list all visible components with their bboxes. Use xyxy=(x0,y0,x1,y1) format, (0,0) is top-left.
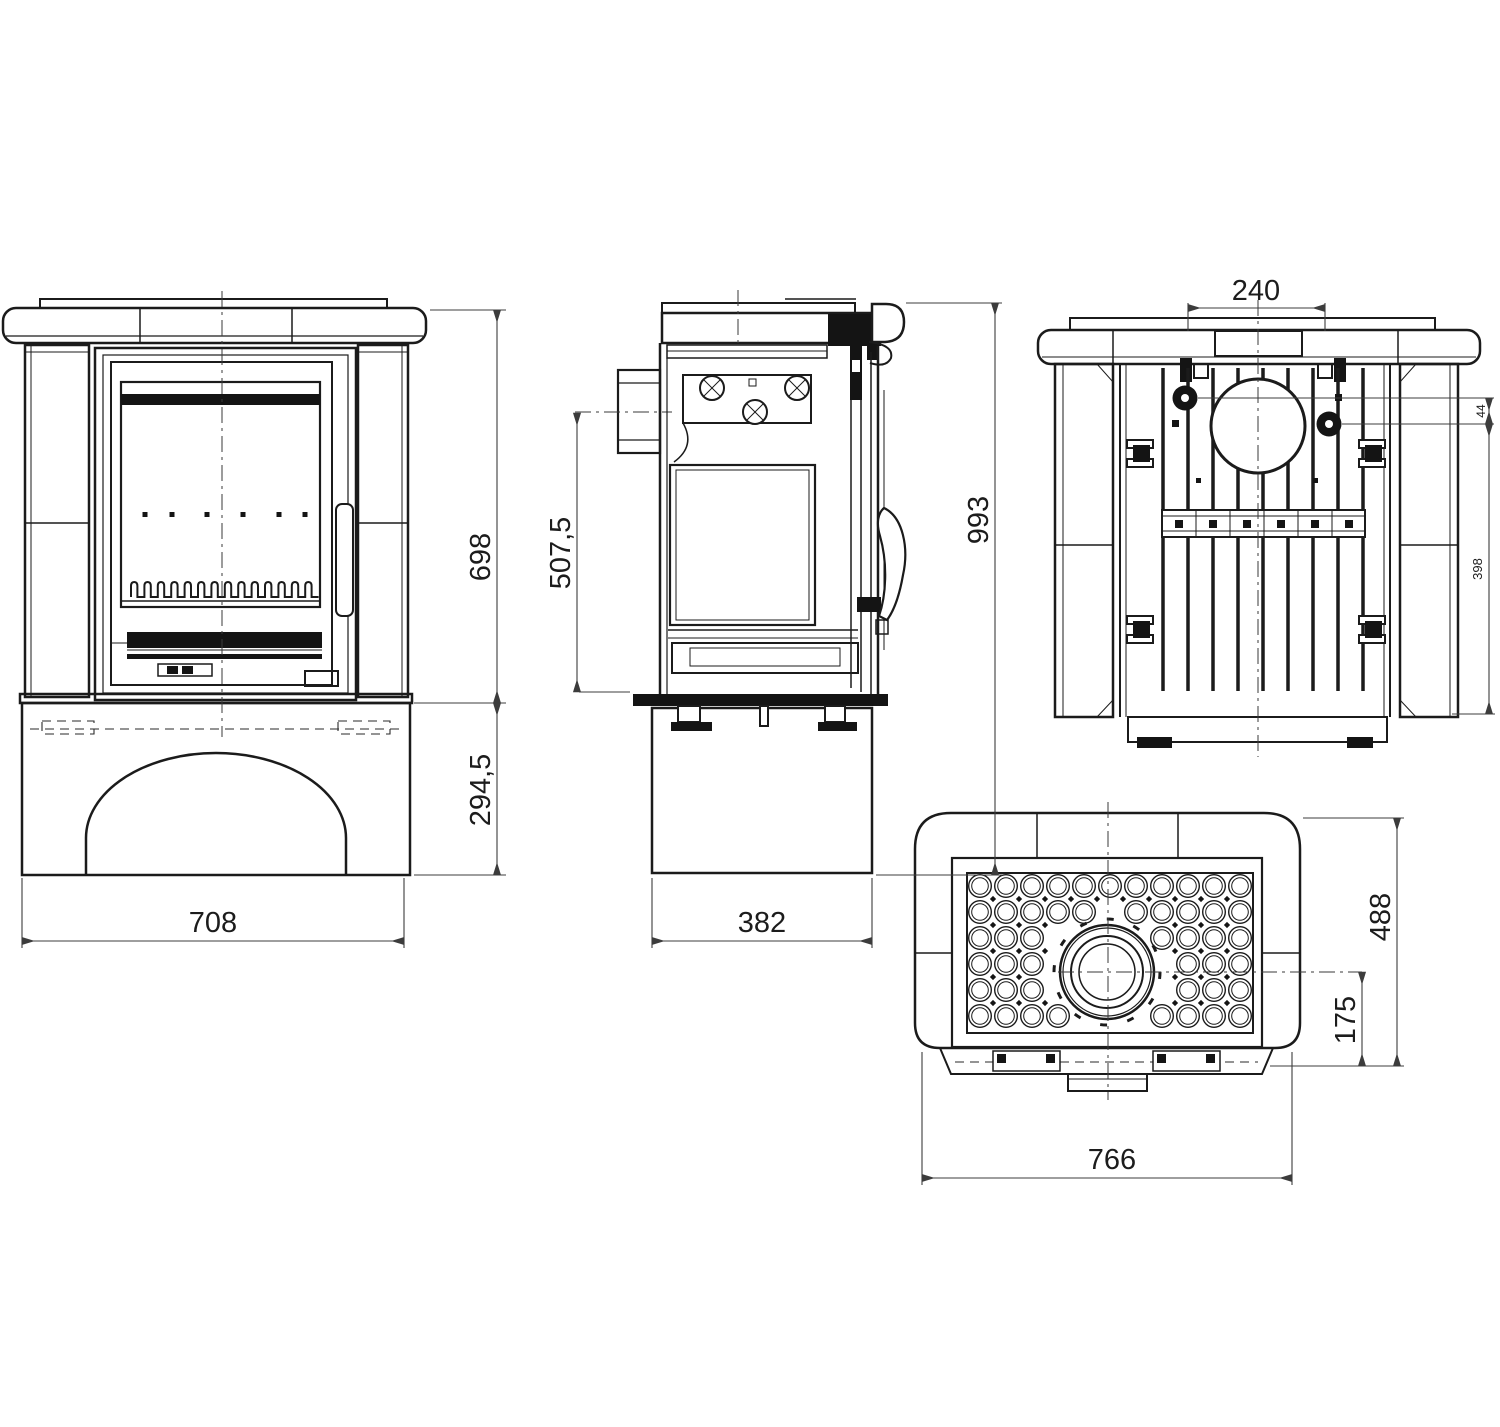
front-top-plate xyxy=(3,299,426,343)
rear-top-plate xyxy=(1038,318,1480,364)
front-base-arch xyxy=(86,753,346,875)
dim-top-width: 766 xyxy=(922,1052,1292,1185)
rear-right-column xyxy=(1400,364,1458,717)
dim-label-side-depth: 382 xyxy=(738,907,786,939)
top-rear-edge xyxy=(940,1048,1273,1091)
dim-label-rear-height: 398 xyxy=(1470,558,1485,580)
side-door-handle xyxy=(878,508,905,620)
top-view xyxy=(915,802,1362,1100)
dim-label-front-body-height: 698 xyxy=(465,533,497,581)
side-view xyxy=(575,290,905,873)
dim-label-side-flue-height: 507,5 xyxy=(545,517,577,590)
front-right-column xyxy=(358,345,408,697)
glass-dot-row xyxy=(143,512,308,517)
front-bottom-rail xyxy=(20,694,412,703)
dim-label-top-width: 766 xyxy=(1088,1144,1136,1176)
dim-label-rear-knob-offset: 44 xyxy=(1474,404,1488,418)
dim-label-rear-flue-spacing: 240 xyxy=(1232,275,1280,307)
side-feet xyxy=(671,706,857,731)
dim-side-depth: 382 xyxy=(652,878,872,948)
dim-label-side-total-height: 993 xyxy=(963,496,995,544)
front-left-column xyxy=(25,345,89,697)
side-body xyxy=(633,343,888,706)
door-handle xyxy=(336,504,353,616)
front-base xyxy=(22,703,410,875)
side-firebox xyxy=(670,465,815,625)
rear-bolt-strip xyxy=(1162,510,1365,537)
flame-baffle-wave xyxy=(131,582,319,597)
technical-drawing-svg: 698 294,5 708 507,5 993 xyxy=(0,0,1500,1427)
dim-front-width: 708 xyxy=(22,878,404,948)
front-view xyxy=(3,291,426,875)
dim-label-front-width: 708 xyxy=(189,907,237,939)
front-ash-lip xyxy=(127,632,322,676)
dim-label-top-depth: 488 xyxy=(1365,893,1397,941)
dim-front-base-height: 294,5 xyxy=(414,703,506,875)
front-door-glass xyxy=(121,382,320,607)
dim-label-front-base-height: 294,5 xyxy=(465,754,497,827)
side-screw-panel xyxy=(683,375,811,424)
stove-dimension-drawing: 698 294,5 708 507,5 993 xyxy=(0,0,1500,1427)
dim-front-body-height: 698 xyxy=(414,310,506,703)
dim-top-flue-offset: 175 xyxy=(1330,972,1362,1066)
side-flue-collar xyxy=(575,370,672,453)
dim-side-flue-height: 507,5 xyxy=(545,413,630,692)
rear-left-column xyxy=(1055,364,1113,717)
dim-rear-flue-spacing: 240 xyxy=(1188,275,1325,331)
dim-label-top-flue-offset: 175 xyxy=(1330,996,1362,1044)
rear-view xyxy=(1038,300,1480,757)
side-base xyxy=(652,708,872,873)
